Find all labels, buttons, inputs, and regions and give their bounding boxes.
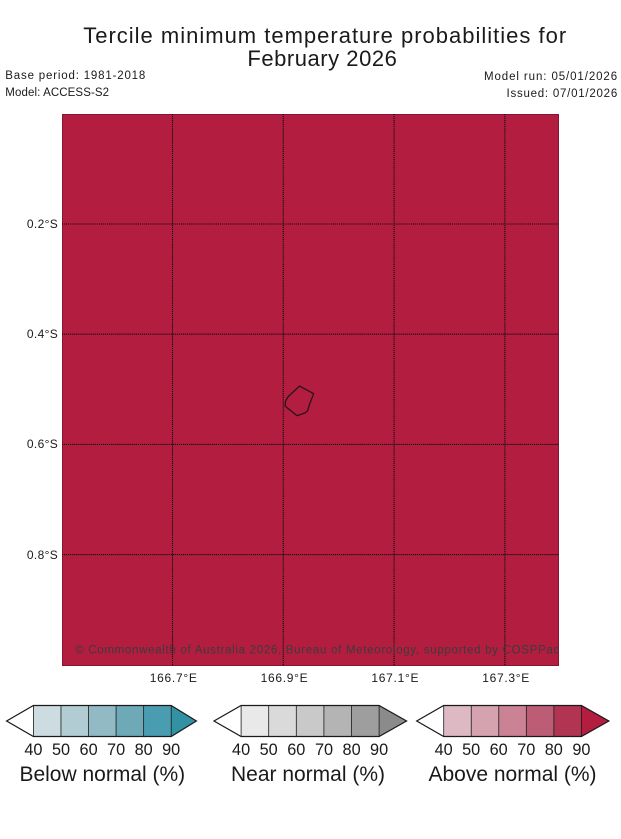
svg-text:© Commonwealth of Australia 20: © Commonwealth of Australia 2026, Bureau… (75, 645, 559, 657)
